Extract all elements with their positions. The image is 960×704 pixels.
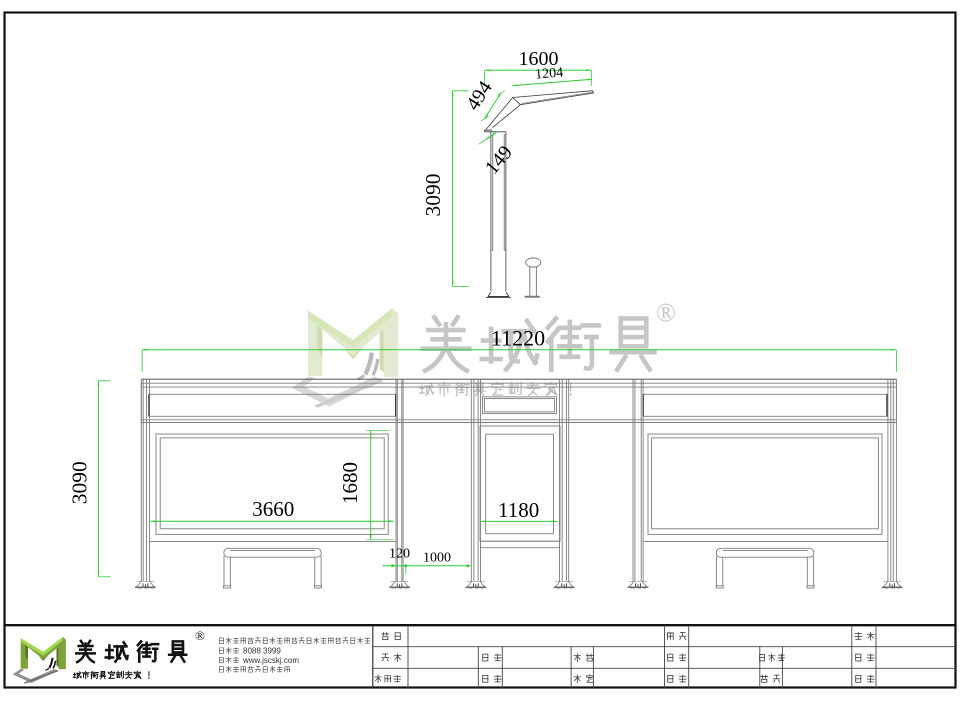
svg-text:3090: 3090 xyxy=(421,174,445,217)
svg-text:1204: 1204 xyxy=(535,65,564,82)
svg-text:1000: 1000 xyxy=(423,551,451,566)
svg-text:3660: 3660 xyxy=(252,497,294,521)
svg-text:149: 149 xyxy=(481,142,517,179)
svg-text:11220: 11220 xyxy=(491,326,545,351)
svg-text:1680: 1680 xyxy=(338,462,362,504)
svg-text:120: 120 xyxy=(389,547,410,562)
svg-text:3090: 3090 xyxy=(68,461,92,504)
svg-text:1180: 1180 xyxy=(498,498,539,522)
svg-text:®: ® xyxy=(656,298,676,327)
svg-text:494: 494 xyxy=(462,77,497,114)
svg-text:®: ® xyxy=(195,628,205,643)
svg-text:8088 3999: 8088 3999 xyxy=(243,647,281,656)
svg-text:www.jscskj.com: www.jscskj.com xyxy=(242,656,299,665)
